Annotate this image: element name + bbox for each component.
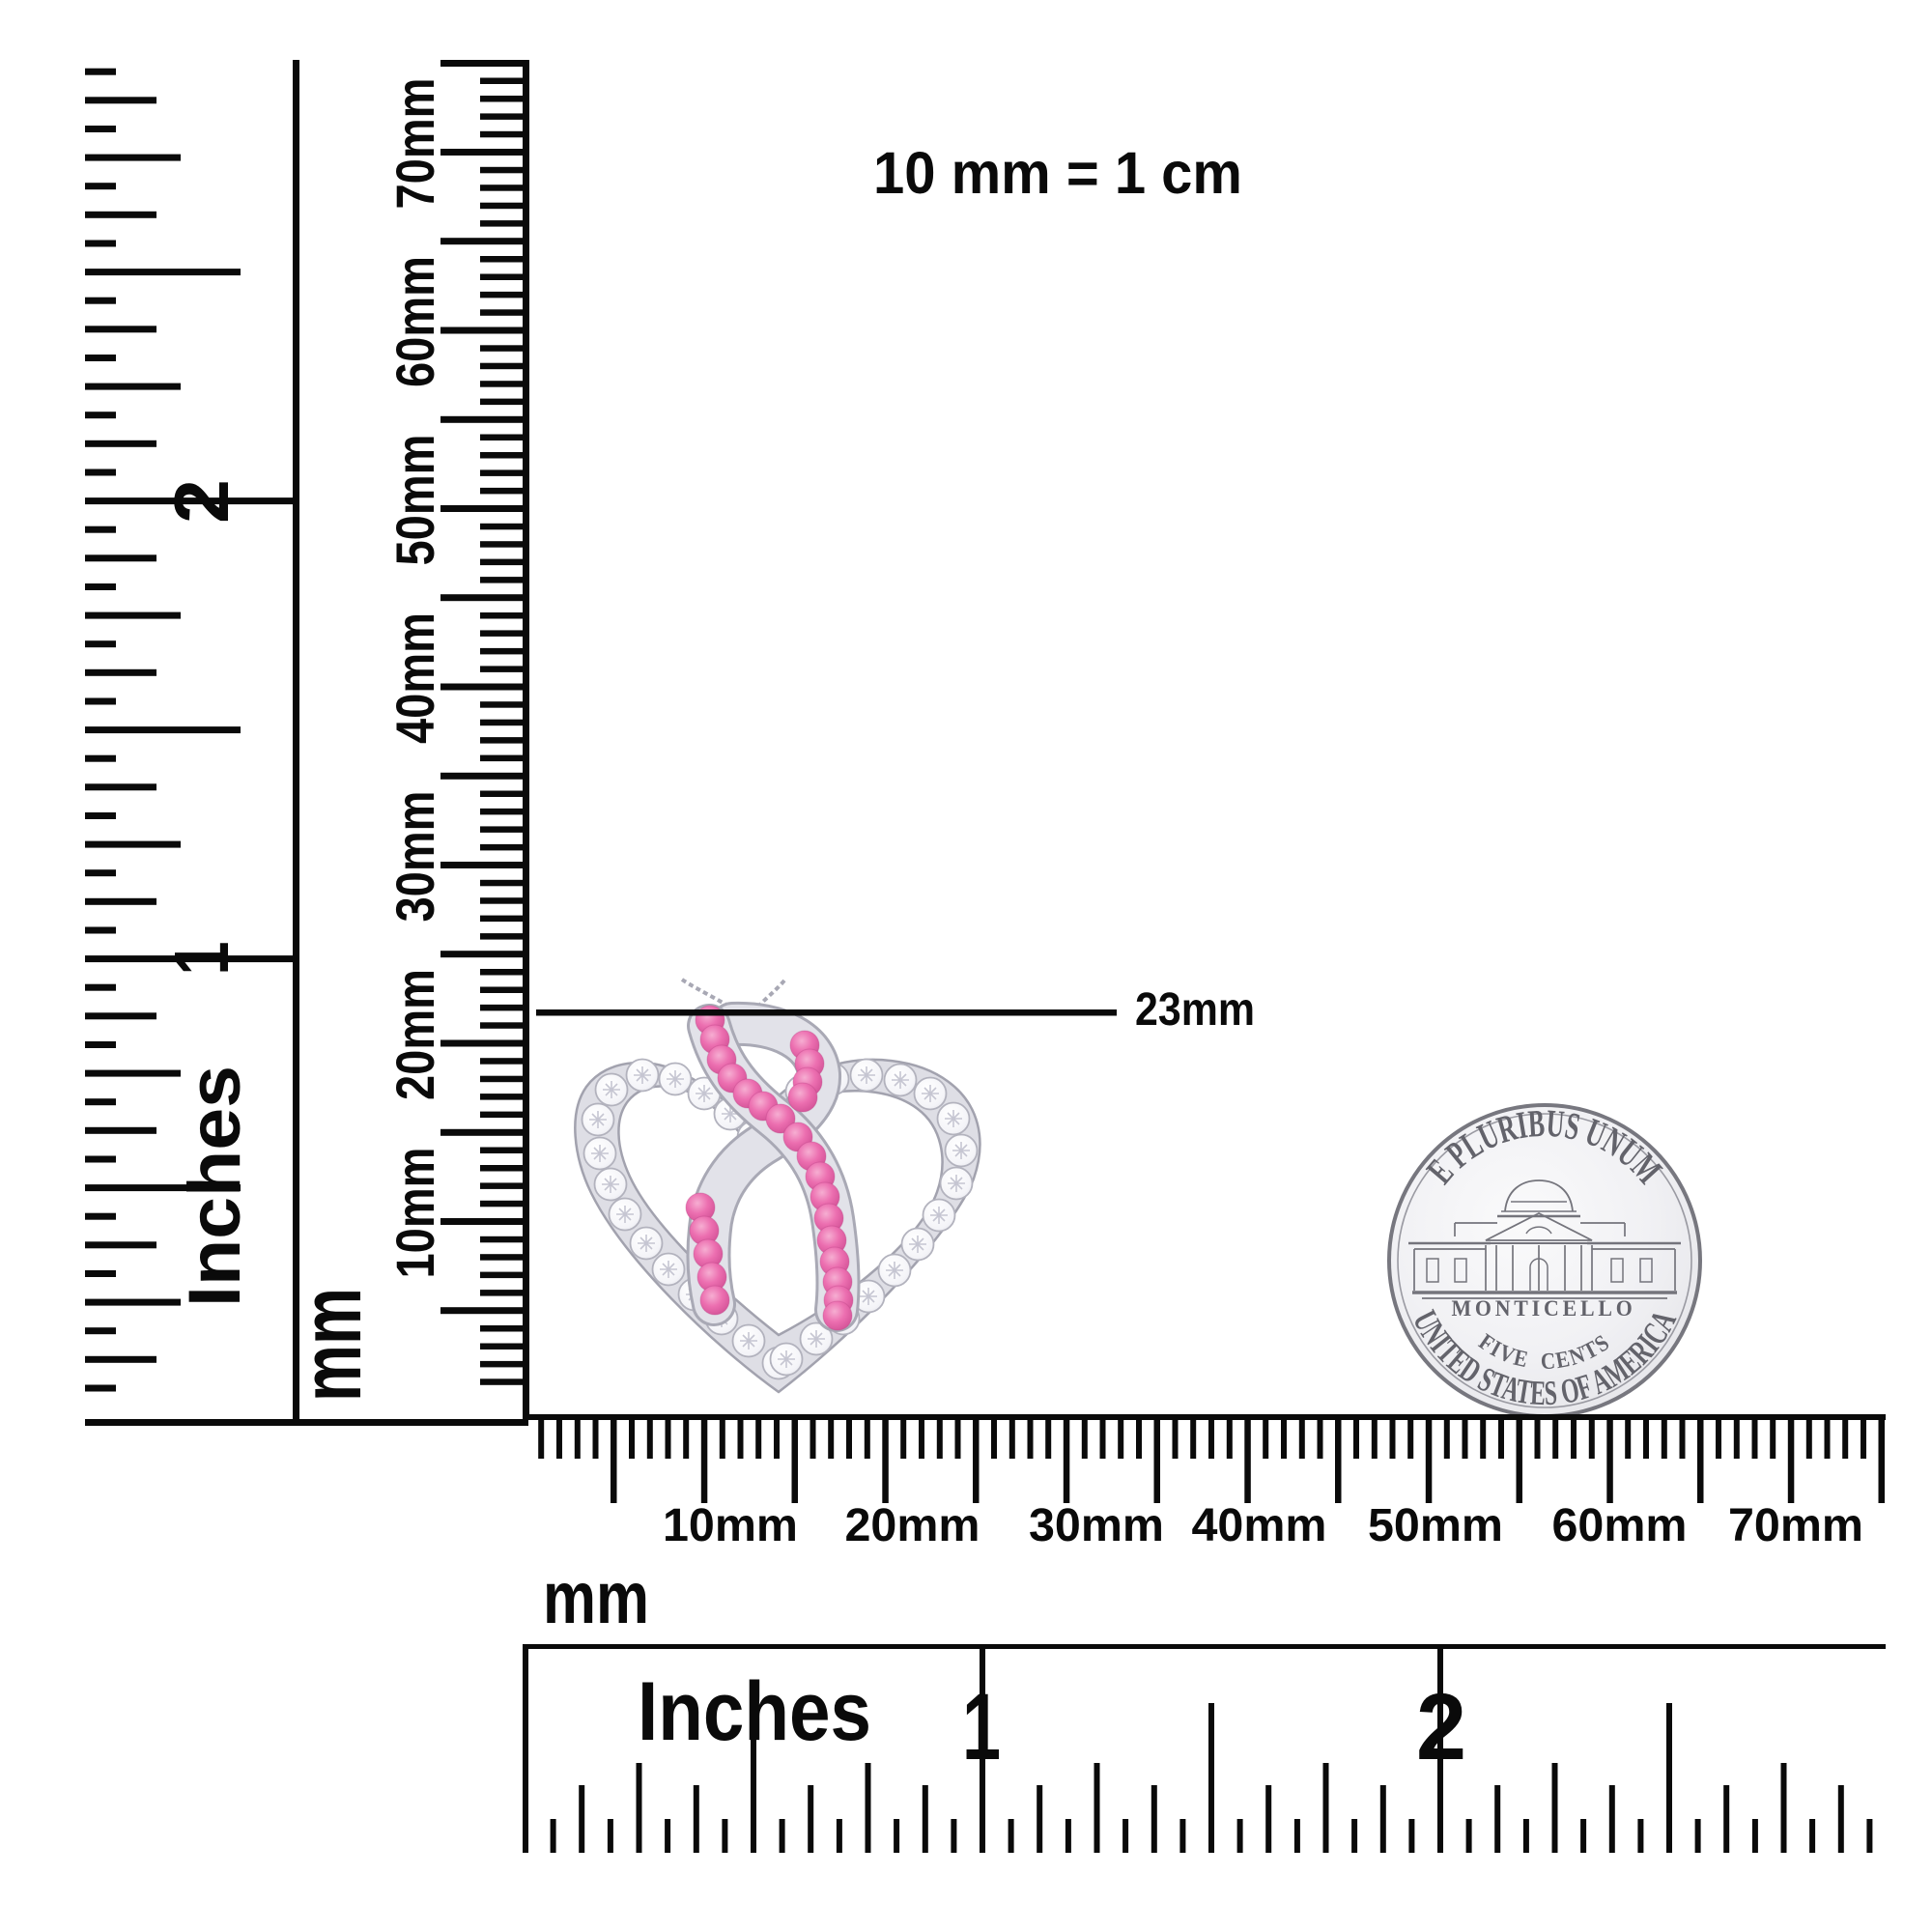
svg-text:mm: mm (543, 1557, 649, 1639)
svg-text:10mm: 10mm (663, 1500, 798, 1551)
svg-text:Inches: Inches (174, 1065, 256, 1307)
svg-text:50mm: 50mm (1368, 1500, 1503, 1551)
svg-text:20mm: 20mm (384, 969, 445, 1100)
svg-text:2: 2 (158, 479, 244, 524)
svg-text:10mm: 10mm (384, 1148, 445, 1279)
svg-text:60mm: 60mm (384, 256, 445, 387)
svg-text:60mm: 60mm (1552, 1500, 1688, 1551)
svg-text:40mm: 40mm (1192, 1500, 1327, 1551)
svg-text:2: 2 (1416, 1674, 1466, 1779)
svg-text:mm: mm (283, 1288, 379, 1402)
svg-text:30mm: 30mm (384, 791, 445, 923)
svg-text:10 mm = 1 cm: 10 mm = 1 cm (873, 140, 1242, 206)
svg-text:50mm: 50mm (384, 435, 445, 566)
svg-text:20mm: 20mm (845, 1500, 980, 1551)
svg-text:MONTICELLO: MONTICELLO (1452, 1296, 1636, 1321)
svg-text:Inches: Inches (638, 1665, 871, 1758)
svg-text:70mm: 70mm (384, 78, 445, 210)
svg-text:23mm: 23mm (1135, 984, 1255, 1036)
svg-text:40mm: 40mm (384, 612, 445, 744)
svg-text:1: 1 (158, 942, 244, 976)
svg-text:70mm: 70mm (1728, 1500, 1863, 1551)
svg-text:30mm: 30mm (1029, 1500, 1164, 1551)
svg-text:1: 1 (962, 1674, 1001, 1779)
